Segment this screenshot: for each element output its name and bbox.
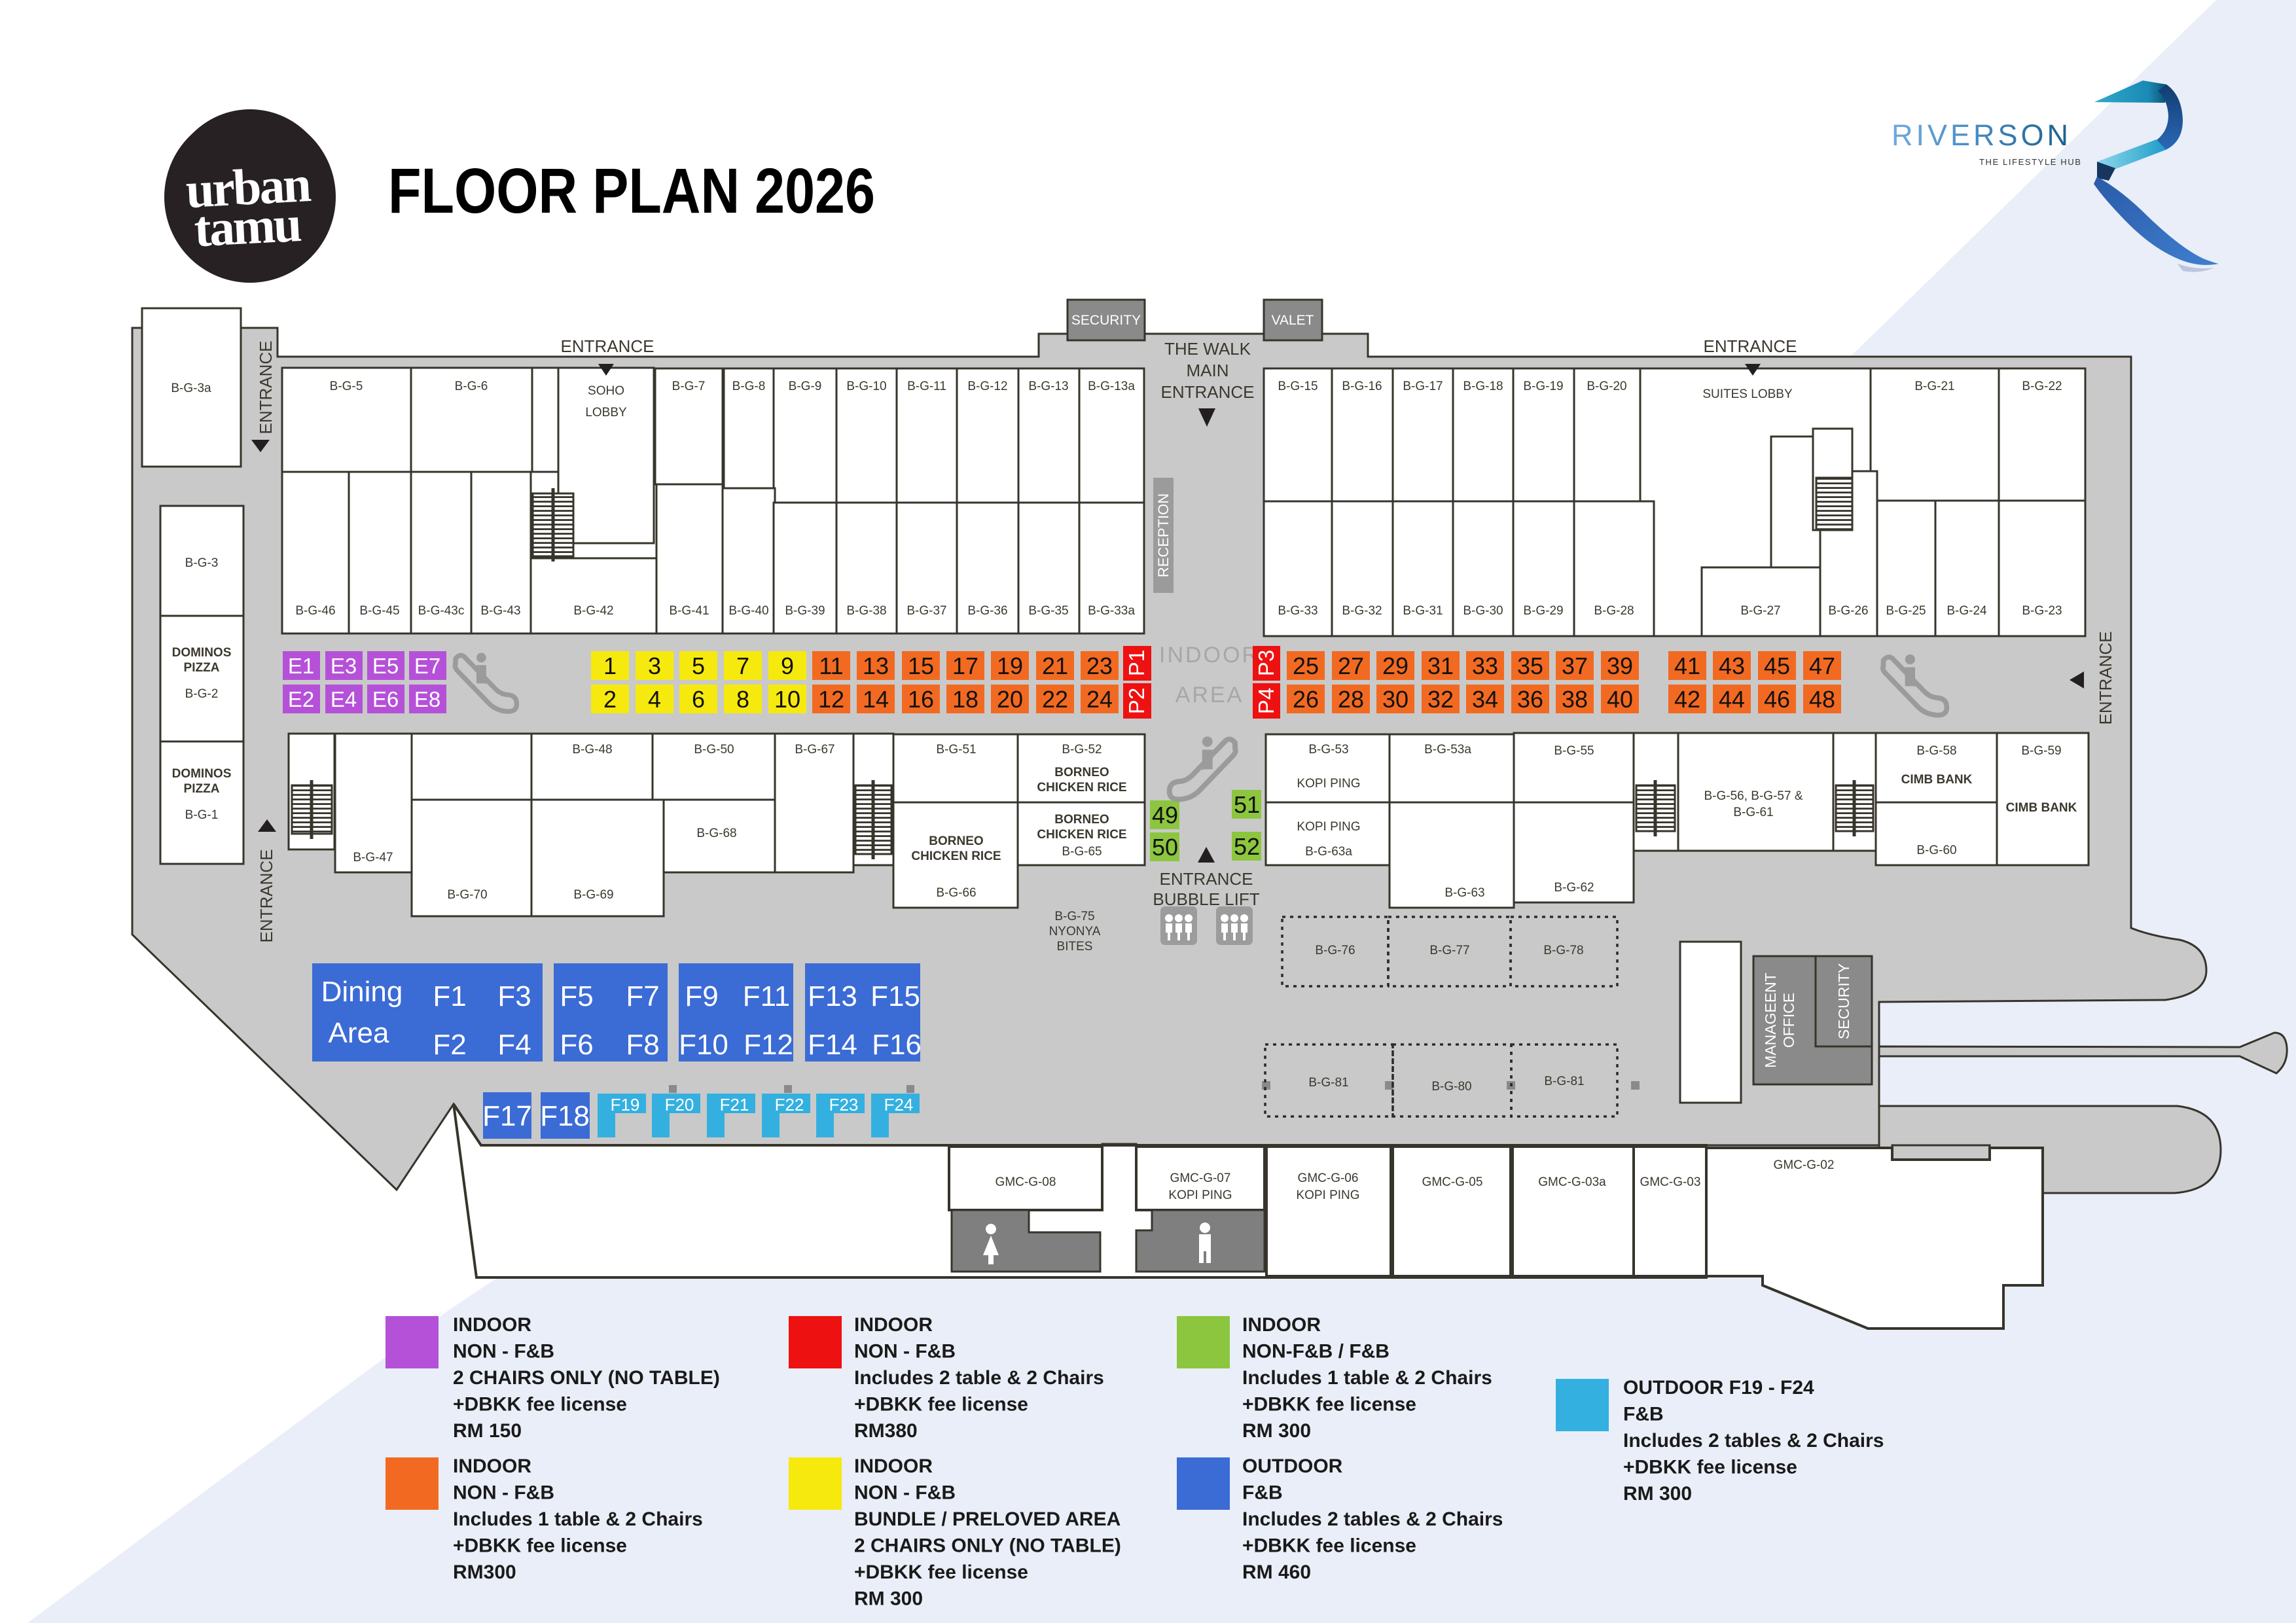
svg-text:7: 7 (736, 652, 749, 679)
svg-text:10: 10 (774, 686, 800, 713)
svg-text:B-G-63: B-G-63 (1444, 886, 1484, 900)
svg-text:ENTRANCE: ENTRANCE (1703, 336, 1797, 356)
svg-text:B-G-59: B-G-59 (2021, 744, 2061, 758)
svg-text:INDOOR: INDOOR (1159, 643, 1260, 668)
svg-text:CHICKEN RICE: CHICKEN RICE (1037, 828, 1126, 842)
svg-text:2: 2 (603, 686, 617, 713)
svg-text:RM 300: RM 300 (1242, 1420, 1311, 1442)
svg-text:31: 31 (1427, 652, 1454, 679)
svg-text:B-G-43: B-G-43 (480, 604, 520, 618)
svg-text:ENTRANCE: ENTRANCE (257, 849, 276, 942)
svg-text:B-G-37: B-G-37 (906, 604, 946, 618)
svg-text:GMC-G-02: GMC-G-02 (1774, 1158, 1835, 1172)
svg-text:B-G-81: B-G-81 (1308, 1076, 1348, 1090)
svg-text:25: 25 (1293, 652, 1319, 679)
svg-text:B-G-12: B-G-12 (967, 380, 1007, 393)
svg-text:BUBBLE LIFT: BUBBLE LIFT (1153, 889, 1259, 909)
svg-text:KOPI PING: KOPI PING (1296, 1188, 1359, 1202)
svg-text:36: 36 (1517, 686, 1543, 713)
svg-text:NON-F&B / F&B: NON-F&B / F&B (1242, 1341, 1390, 1363)
svg-text:B-G-80: B-G-80 (1431, 1080, 1471, 1094)
svg-text:B-G-42: B-G-42 (573, 604, 613, 618)
svg-text:F22: F22 (775, 1095, 804, 1115)
svg-text:NON - F&B: NON - F&B (453, 1482, 554, 1504)
svg-text:B-G-26: B-G-26 (1828, 604, 1868, 618)
svg-text:B-G-63a: B-G-63a (1305, 845, 1352, 859)
svg-text:DOMINOS: DOMINOS (172, 767, 232, 781)
svg-text:RM 460: RM 460 (1242, 1561, 1311, 1583)
svg-text:BORNEO: BORNEO (1054, 766, 1109, 779)
svg-text:B-G-13: B-G-13 (1028, 380, 1068, 393)
svg-text:B-G-53: B-G-53 (1308, 743, 1348, 757)
svg-text:51: 51 (1234, 791, 1260, 818)
svg-text:B-G-32: B-G-32 (1342, 604, 1382, 618)
svg-text:F7: F7 (626, 980, 659, 1012)
svg-text:14: 14 (863, 686, 889, 713)
svg-text:F6: F6 (560, 1029, 593, 1061)
svg-text:SUITES LOBBY: SUITES LOBBY (1702, 387, 1793, 401)
svg-text:9: 9 (781, 652, 794, 679)
svg-text:16: 16 (908, 686, 934, 713)
svg-text:B-G-13a: B-G-13a (1088, 380, 1135, 393)
svg-text:F14: F14 (808, 1029, 857, 1061)
svg-text:NYONYA: NYONYA (1049, 925, 1101, 938)
svg-text:E7: E7 (414, 654, 440, 678)
svg-text:B-G-48: B-G-48 (572, 743, 612, 757)
svg-text:B-G-67: B-G-67 (795, 743, 834, 757)
svg-text:33: 33 (1472, 652, 1498, 679)
svg-text:1: 1 (603, 652, 617, 679)
svg-text:SECURITY: SECURITY (1835, 963, 1852, 1039)
svg-text:+DBKK fee license: +DBKK fee license (1242, 1394, 1416, 1416)
svg-text:B-G-36: B-G-36 (967, 604, 1007, 618)
svg-text:P2: P2 (1124, 688, 1149, 714)
svg-text:OUTDOOR: OUTDOOR (1242, 1455, 1343, 1477)
svg-text:DOMINOS: DOMINOS (172, 646, 232, 660)
svg-text:B-G-3: B-G-3 (185, 556, 219, 570)
svg-text:F20: F20 (665, 1095, 694, 1115)
svg-text:B-G-1: B-G-1 (185, 808, 219, 822)
svg-text:AREA: AREA (1175, 683, 1244, 707)
svg-text:Includes 1 table & 2 Chairs: Includes 1 table & 2 Chairs (453, 1508, 703, 1530)
svg-text:F13: F13 (808, 980, 857, 1012)
svg-text:8: 8 (736, 686, 749, 713)
svg-text:F21: F21 (720, 1095, 749, 1115)
svg-text:FLOOR PLAN 2026: FLOOR PLAN 2026 (388, 155, 875, 226)
svg-text:F12: F12 (744, 1029, 793, 1061)
svg-text:B-G-45: B-G-45 (359, 604, 399, 618)
svg-text:B-G-60: B-G-60 (1916, 844, 1956, 857)
svg-text:B-G-75: B-G-75 (1054, 910, 1094, 923)
svg-text:B-G-20: B-G-20 (1587, 380, 1626, 393)
svg-text:P1: P1 (1124, 650, 1149, 676)
svg-text:48: 48 (1809, 686, 1835, 713)
svg-text:+DBKK fee license: +DBKK fee license (854, 1394, 1028, 1416)
svg-text:BUNDLE / PRELOVED AREA: BUNDLE / PRELOVED AREA (854, 1508, 1121, 1530)
svg-text:ENTRANCE: ENTRANCE (256, 340, 276, 434)
svg-text:B-G-2: B-G-2 (185, 687, 219, 701)
svg-text:42: 42 (1674, 686, 1700, 713)
svg-text:B-G-56, B-G-57 &: B-G-56, B-G-57 & (1704, 789, 1803, 803)
svg-text:18: 18 (952, 686, 978, 713)
svg-text:GMC-G-05: GMC-G-05 (1422, 1175, 1483, 1189)
svg-text:tamu: tamu (193, 195, 302, 257)
svg-text:19: 19 (997, 652, 1023, 679)
svg-text:B-G-70: B-G-70 (447, 888, 487, 902)
svg-text:B-G-22: B-G-22 (2022, 380, 2062, 393)
svg-text:B-G-24: B-G-24 (1946, 604, 1987, 618)
svg-text:E2: E2 (288, 687, 314, 711)
svg-text:B-G-76: B-G-76 (1315, 944, 1355, 957)
svg-text:5: 5 (692, 652, 705, 679)
svg-text:B-G-23: B-G-23 (2022, 604, 2062, 618)
svg-text:B-G-33a: B-G-33a (1088, 604, 1135, 618)
svg-text:B-G-62: B-G-62 (1554, 881, 1594, 895)
svg-text:B-G-51: B-G-51 (936, 743, 976, 757)
svg-text:B-G-35: B-G-35 (1028, 604, 1068, 618)
svg-text:B-G-61: B-G-61 (1733, 806, 1773, 819)
svg-text:RECEPTION: RECEPTION (1155, 493, 1172, 577)
svg-text:F24: F24 (884, 1095, 914, 1115)
svg-text:INDOOR: INDOOR (453, 1455, 531, 1477)
svg-text:B-G-66: B-G-66 (936, 886, 976, 900)
svg-text:RIVERSON: RIVERSON (1892, 118, 2072, 152)
svg-text:Includes 2 tables & 2 Chairs: Includes 2 tables & 2 Chairs (1623, 1430, 1884, 1452)
svg-text:B-G-17: B-G-17 (1403, 380, 1443, 393)
svg-text:B-G-29: B-G-29 (1523, 604, 1563, 618)
svg-text:24: 24 (1086, 686, 1113, 713)
svg-text:B-G-52: B-G-52 (1062, 743, 1102, 757)
svg-text:B-G-30: B-G-30 (1463, 604, 1503, 618)
svg-text:Includes 1 table & 2 Chairs: Includes 1 table & 2 Chairs (1242, 1367, 1492, 1389)
svg-text:GMC-G-03a: GMC-G-03a (1538, 1175, 1606, 1189)
svg-text:+DBKK fee license: +DBKK fee license (1623, 1457, 1797, 1478)
svg-text:B-G-68: B-G-68 (696, 827, 736, 840)
svg-text:E6: E6 (372, 687, 399, 711)
svg-text:B-G-28: B-G-28 (1594, 604, 1634, 618)
svg-text:PIZZA: PIZZA (184, 782, 220, 796)
svg-text:F11: F11 (743, 980, 791, 1012)
svg-text:F18: F18 (540, 1100, 590, 1132)
svg-text:BORNEO: BORNEO (1054, 813, 1109, 827)
svg-text:Includes 2 table & 2 Chairs: Includes 2 table & 2 Chairs (854, 1367, 1104, 1389)
svg-text:SOHO: SOHO (588, 384, 624, 398)
svg-text:F16: F16 (872, 1029, 922, 1061)
svg-text:ENTRANCE: ENTRANCE (1160, 382, 1254, 402)
svg-text:INDOOR: INDOOR (1242, 1314, 1321, 1336)
svg-text:CHICKEN RICE: CHICKEN RICE (911, 849, 1001, 863)
svg-text:34: 34 (1472, 686, 1498, 713)
svg-text:29: 29 (1382, 652, 1408, 679)
svg-text:B-G-8: B-G-8 (732, 380, 766, 393)
svg-text:B-G-9: B-G-9 (789, 380, 822, 393)
svg-text:4: 4 (648, 686, 661, 713)
svg-text:F9: F9 (685, 980, 718, 1012)
svg-text:3: 3 (648, 652, 661, 679)
svg-text:B-G-33: B-G-33 (1278, 604, 1318, 618)
svg-text:2 CHAIRS ONLY (NO TABLE): 2 CHAIRS ONLY (NO TABLE) (854, 1535, 1121, 1557)
svg-text:VALET: VALET (1272, 313, 1314, 328)
svg-text:B-G-21: B-G-21 (1914, 380, 1954, 393)
svg-text:B-G-27: B-G-27 (1740, 604, 1780, 618)
svg-text:RM 150: RM 150 (453, 1420, 522, 1442)
svg-text:P4: P4 (1254, 688, 1278, 714)
svg-text:F4: F4 (497, 1029, 531, 1061)
svg-text:20: 20 (997, 686, 1023, 713)
svg-text:CIMB BANK: CIMB BANK (1901, 773, 1973, 787)
svg-text:45: 45 (1764, 652, 1790, 679)
svg-text:E8: E8 (414, 687, 440, 711)
svg-text:21: 21 (1042, 652, 1068, 679)
svg-text:OUTDOOR F19 - F24: OUTDOOR F19 - F24 (1623, 1377, 1814, 1399)
svg-text:22: 22 (1042, 686, 1068, 713)
svg-text:NON - F&B: NON - F&B (854, 1482, 956, 1504)
svg-text:SECURITY: SECURITY (1071, 313, 1141, 328)
svg-text:B-G-43c: B-G-43c (418, 604, 465, 618)
svg-text:LOBBY: LOBBY (585, 406, 627, 419)
svg-text:B-G-11: B-G-11 (907, 380, 946, 393)
svg-text:OFFICE: OFFICE (1780, 993, 1797, 1048)
svg-text:30: 30 (1382, 686, 1408, 713)
svg-text:B-G-6: B-G-6 (455, 380, 488, 393)
svg-text:RM 300: RM 300 (1623, 1483, 1692, 1505)
svg-text:KOPI PING: KOPI PING (1297, 777, 1360, 791)
svg-text:B-G-69: B-G-69 (573, 888, 613, 902)
svg-text:+DBKK fee license: +DBKK fee license (453, 1394, 627, 1416)
svg-text:F&B: F&B (1623, 1404, 1664, 1425)
svg-text:46: 46 (1764, 686, 1790, 713)
svg-text:B-G-58: B-G-58 (1916, 744, 1956, 758)
svg-text:B-G-3a: B-G-3a (171, 382, 211, 395)
svg-text:13: 13 (863, 652, 889, 679)
svg-text:12: 12 (818, 686, 844, 713)
svg-text:B-G-47: B-G-47 (353, 851, 393, 865)
svg-text:CHICKEN RICE: CHICKEN RICE (1037, 781, 1126, 794)
svg-text:+DBKK fee license: +DBKK fee license (1242, 1535, 1416, 1557)
svg-text:43: 43 (1719, 652, 1745, 679)
svg-text:17: 17 (952, 652, 978, 679)
svg-text:B-G-16: B-G-16 (1342, 380, 1382, 393)
svg-text:15: 15 (908, 652, 934, 679)
svg-text:B-G-65: B-G-65 (1062, 845, 1102, 859)
svg-text:NON - F&B: NON - F&B (453, 1341, 554, 1363)
svg-text:MANAGEENT: MANAGEENT (1762, 972, 1779, 1068)
svg-text:THE WALK: THE WALK (1164, 339, 1251, 359)
svg-text:B-G-31: B-G-31 (1403, 604, 1443, 618)
svg-text:B-G-18: B-G-18 (1463, 380, 1503, 393)
svg-text:BITES: BITES (1057, 940, 1093, 954)
svg-text:37: 37 (1562, 652, 1588, 679)
svg-text:GMC-G-03: GMC-G-03 (1640, 1175, 1701, 1189)
svg-text:38: 38 (1562, 686, 1588, 713)
svg-text:CIMB BANK: CIMB BANK (2006, 801, 2077, 815)
svg-text:RM380: RM380 (854, 1420, 918, 1442)
svg-text:B-G-77: B-G-77 (1429, 944, 1469, 957)
svg-text:F1: F1 (433, 980, 466, 1012)
svg-text:50: 50 (1152, 834, 1178, 861)
svg-text:B-G-15: B-G-15 (1278, 380, 1318, 393)
svg-text:B-G-41: B-G-41 (669, 604, 709, 618)
svg-text:B-G-10: B-G-10 (846, 380, 886, 393)
svg-text:39: 39 (1607, 652, 1633, 679)
svg-text:6: 6 (692, 686, 705, 713)
svg-text:ENTRANCE: ENTRANCE (560, 336, 654, 356)
svg-text:+DBKK fee license: +DBKK fee license (854, 1561, 1028, 1583)
svg-text:F2: F2 (433, 1029, 466, 1061)
svg-text:+DBKK fee license: +DBKK fee license (453, 1535, 627, 1557)
svg-text:F19: F19 (611, 1095, 640, 1115)
svg-text:B-G-46: B-G-46 (295, 604, 335, 618)
svg-text:32: 32 (1427, 686, 1454, 713)
svg-text:52: 52 (1234, 833, 1260, 860)
svg-text:28: 28 (1338, 686, 1364, 713)
svg-text:B-G-5: B-G-5 (330, 380, 363, 393)
svg-text:KOPI PING: KOPI PING (1297, 820, 1360, 834)
svg-text:B-G-53a: B-G-53a (1424, 743, 1471, 757)
svg-text:F8: F8 (626, 1029, 659, 1061)
svg-text:RM 300: RM 300 (854, 1588, 923, 1610)
svg-text:B-G-50: B-G-50 (694, 743, 734, 757)
svg-text:B-G-39: B-G-39 (785, 604, 825, 618)
svg-text:MAIN: MAIN (1187, 361, 1229, 380)
svg-text:F15: F15 (870, 980, 920, 1012)
svg-text:26: 26 (1293, 686, 1319, 713)
svg-text:P3: P3 (1254, 650, 1278, 676)
svg-text:THE LIFESTYLE HUB: THE LIFESTYLE HUB (1979, 157, 2082, 167)
svg-text:INDOOR: INDOOR (453, 1314, 531, 1336)
svg-text:BORNEO: BORNEO (929, 834, 983, 848)
svg-text:B-G-19: B-G-19 (1523, 380, 1563, 393)
svg-text:GMC-G-07: GMC-G-07 (1170, 1171, 1231, 1185)
svg-text:B-G-81: B-G-81 (1544, 1075, 1584, 1088)
svg-text:49: 49 (1152, 802, 1178, 829)
svg-text:B-G-25: B-G-25 (1886, 604, 1926, 618)
svg-text:F5: F5 (560, 980, 593, 1012)
svg-text:40: 40 (1607, 686, 1633, 713)
svg-text:ENTRANCE: ENTRANCE (1159, 869, 1253, 889)
svg-text:Area: Area (329, 1017, 389, 1049)
svg-text:ENTRANCE: ENTRANCE (2096, 631, 2115, 724)
svg-text:B-G-40: B-G-40 (728, 604, 768, 618)
svg-text:Dining: Dining (321, 976, 403, 1008)
svg-text:41: 41 (1674, 652, 1700, 679)
svg-text:E5: E5 (372, 654, 399, 678)
svg-text:B-G-38: B-G-38 (846, 604, 886, 618)
svg-text:11: 11 (819, 652, 843, 679)
svg-text:47: 47 (1809, 652, 1835, 679)
svg-text:E4: E4 (331, 687, 357, 711)
svg-text:F3: F3 (497, 980, 531, 1012)
svg-text:INDOOR: INDOOR (854, 1455, 933, 1477)
svg-text:35: 35 (1517, 652, 1543, 679)
svg-text:Includes 2 tables & 2 Chairs: Includes 2 tables & 2 Chairs (1242, 1508, 1503, 1530)
svg-text:PIZZA: PIZZA (184, 661, 220, 675)
svg-text:23: 23 (1086, 652, 1113, 679)
svg-text:E1: E1 (288, 654, 314, 678)
svg-text:F&B: F&B (1242, 1482, 1283, 1504)
svg-text:NON - F&B: NON - F&B (854, 1341, 956, 1363)
svg-text:B-G-78: B-G-78 (1543, 944, 1583, 957)
svg-text:GMC-G-08: GMC-G-08 (996, 1175, 1056, 1189)
svg-text:RM300: RM300 (453, 1561, 516, 1583)
svg-text:B-G-7: B-G-7 (672, 380, 706, 393)
svg-text:2 CHAIRS ONLY (NO TABLE): 2 CHAIRS ONLY (NO TABLE) (453, 1367, 720, 1389)
svg-text:GMC-G-06: GMC-G-06 (1298, 1171, 1359, 1185)
svg-text:44: 44 (1719, 686, 1745, 713)
svg-text:27: 27 (1338, 652, 1364, 679)
svg-text:F23: F23 (829, 1095, 859, 1115)
svg-text:KOPI PING: KOPI PING (1168, 1188, 1232, 1202)
svg-text:F10: F10 (679, 1029, 728, 1061)
svg-text:B-G-55: B-G-55 (1554, 744, 1594, 758)
svg-text:E3: E3 (331, 654, 357, 678)
svg-text:INDOOR: INDOOR (854, 1314, 933, 1336)
svg-text:F17: F17 (482, 1100, 532, 1132)
